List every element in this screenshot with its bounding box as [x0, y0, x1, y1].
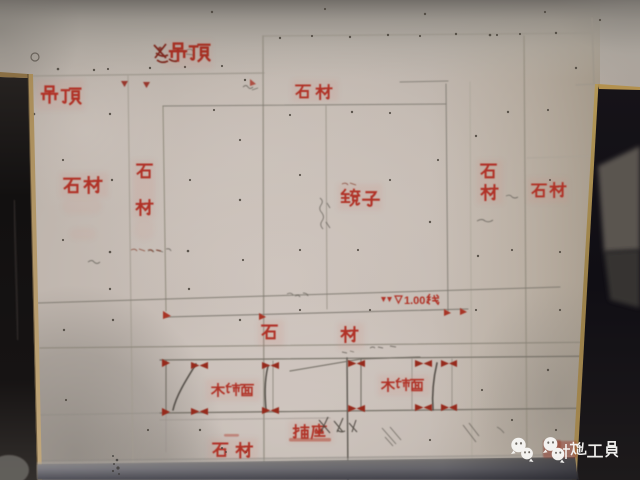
- svg-text:1.00: 1.00: [404, 295, 425, 307]
